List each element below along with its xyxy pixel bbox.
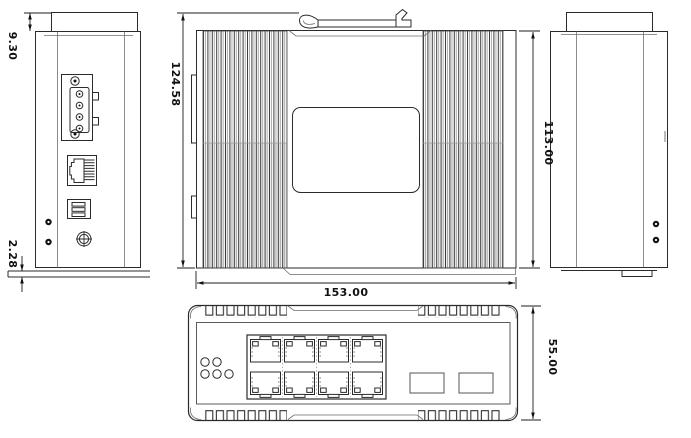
hinge-tab <box>192 196 197 218</box>
mounting-plate-recess <box>293 108 420 193</box>
dimension-9-30: 9.30 <box>6 13 51 60</box>
fin-teeth <box>418 306 501 318</box>
dim-label-body-height: 113.00 <box>542 121 555 166</box>
rj45-port <box>319 372 349 397</box>
fin-teeth <box>418 409 501 421</box>
dimension-55-00: 55.00 <box>521 306 559 420</box>
dimension-drawing: 9.30 2.28 124.58 153.00 113.00 <box>0 0 691 438</box>
left-side-view <box>8 13 150 278</box>
rj45-port <box>251 337 281 362</box>
dim-label-overall-height: 124.58 <box>169 62 182 107</box>
rj45-port-block <box>247 335 386 399</box>
din-rail-clip <box>289 10 431 37</box>
sfp-slot <box>410 373 444 393</box>
rear-view <box>192 10 517 275</box>
fin-teeth <box>204 409 287 421</box>
din-rail-edge <box>8 271 150 277</box>
dip-switch <box>68 200 91 219</box>
power-terminal-block <box>62 75 99 141</box>
dim-label-flange-offset: 9.30 <box>6 32 19 61</box>
rj45-port <box>319 337 349 362</box>
dimension-153-00: 153.00 <box>196 271 516 299</box>
ground-screw-icon <box>76 231 92 247</box>
front-panel-view <box>189 306 518 421</box>
right-side-view <box>551 13 668 277</box>
rj45-port <box>285 372 315 397</box>
dimension-2-28: 2.28 <box>6 240 24 292</box>
dim-label-body-depth: 55.00 <box>546 339 559 376</box>
hinge-tab <box>192 75 197 143</box>
rj45-port <box>251 372 281 397</box>
drawing-svg: 9.30 2.28 124.58 153.00 113.00 <box>0 0 691 438</box>
rj45-port <box>285 337 315 362</box>
dim-label-overall-width: 153.00 <box>324 286 369 299</box>
status-leds <box>201 358 233 378</box>
bottom-tab <box>622 271 652 277</box>
bottom-plate-edge <box>283 268 516 275</box>
sfp-slot <box>459 373 493 393</box>
top-flange <box>567 13 653 32</box>
rj45-port <box>353 372 383 397</box>
right-body-outline <box>551 32 668 268</box>
panel-screws-left <box>45 219 51 245</box>
top-flange <box>52 13 138 32</box>
panel-screws-right <box>653 221 659 243</box>
dimension-113-00: 113.00 <box>519 31 555 268</box>
dim-label-rail-thickness: 2.28 <box>6 240 19 269</box>
rj45-port <box>353 337 383 362</box>
fin-teeth <box>204 306 287 318</box>
console-rj45-port <box>68 156 97 186</box>
